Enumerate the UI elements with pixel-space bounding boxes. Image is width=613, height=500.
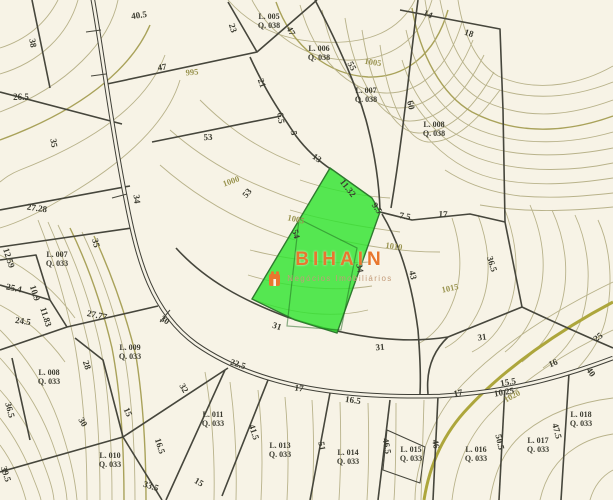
measurement-label: 24.5 bbox=[15, 315, 32, 327]
measurement-label: 35 bbox=[48, 138, 59, 148]
measurement-label: 31 bbox=[375, 342, 385, 353]
plat-map: 40.5382347141826.547215560536.5513353427… bbox=[0, 0, 613, 500]
measurement-label: 31 bbox=[477, 331, 487, 342]
measurement-label: 47 bbox=[284, 25, 297, 38]
measurement-label: 36.5 bbox=[485, 255, 499, 273]
measurement-label: 15 bbox=[193, 475, 206, 488]
measurement-label: 30 bbox=[76, 416, 89, 429]
measurement-label: 14 bbox=[422, 8, 434, 21]
block-number: Q. 033 bbox=[202, 419, 224, 428]
measurement-label: 54 bbox=[290, 228, 302, 239]
watermark-subtitle: Negócios Imobiliários bbox=[265, 274, 415, 283]
lot-number: L. 009 bbox=[119, 343, 141, 352]
contour-elevation-label: 1015 bbox=[441, 281, 460, 294]
lot-label: L. 016Q. 033 bbox=[465, 445, 487, 463]
contour-elevation-label: 1000 bbox=[221, 173, 240, 188]
lot-label: L. 006Q. 038 bbox=[308, 44, 330, 62]
lot-label: L. 009Q. 033 bbox=[119, 343, 141, 361]
block-number: Q. 038 bbox=[308, 53, 330, 62]
lot-label: L. 013Q. 033 bbox=[269, 441, 291, 459]
measurement-label: 47.5 bbox=[550, 422, 564, 440]
measurement-label: 55 bbox=[345, 60, 358, 73]
bihain-logo-icon bbox=[268, 271, 282, 287]
block-number: Q. 033 bbox=[119, 352, 141, 361]
measurement-label: 46 bbox=[430, 439, 441, 450]
measurement-label: 25.4 bbox=[5, 281, 22, 294]
measurement-label: 9.5 bbox=[370, 201, 385, 216]
lot-number: L. 015 bbox=[400, 445, 422, 454]
measurement-label: 27.77 bbox=[86, 308, 108, 322]
measurement-label: 53 bbox=[240, 186, 253, 199]
block-number: Q. 033 bbox=[570, 419, 592, 428]
measurement-label: 10.9 bbox=[28, 284, 42, 302]
measurement-label: 16.5 bbox=[345, 394, 362, 406]
measurement-label: 51 bbox=[316, 441, 327, 452]
lot-label: L. 008Q. 038 bbox=[423, 120, 445, 138]
lot-label: L. 005Q. 038 bbox=[258, 12, 280, 30]
measurement-label: 30 bbox=[159, 313, 172, 326]
lot-number: L. 017 bbox=[527, 436, 549, 445]
measurement-label: 21 bbox=[256, 77, 268, 89]
measurement-label: 17 bbox=[294, 382, 304, 393]
block-number: Q. 038 bbox=[423, 129, 445, 138]
measurement-label: 36.5 bbox=[3, 401, 17, 419]
measurement-label: 11.32 bbox=[338, 177, 358, 199]
lot-number: L. 006 bbox=[308, 44, 330, 53]
measurement-label: 27.28 bbox=[26, 202, 47, 215]
block-number: Q. 033 bbox=[337, 457, 359, 466]
measurement-label: 50.5 bbox=[493, 433, 506, 450]
lot-number: L. 007 bbox=[46, 250, 68, 259]
measurement-label: 26.5 bbox=[13, 92, 29, 102]
block-number: Q. 033 bbox=[99, 460, 121, 469]
block-number: Q. 038 bbox=[355, 95, 377, 104]
measurement-label: 12.59 bbox=[1, 247, 17, 269]
lot-label: L. 007Q. 038 bbox=[355, 86, 377, 104]
measurement-label: 7.5 bbox=[399, 210, 412, 222]
measurement-label: 46.5 bbox=[381, 437, 394, 454]
block-number: Q. 033 bbox=[465, 454, 487, 463]
lot-number: L. 007 bbox=[355, 86, 377, 95]
contour-elevation-label: 995 bbox=[185, 66, 199, 77]
lot-label: L. 018Q. 033 bbox=[570, 410, 592, 428]
block-number: Q. 033 bbox=[269, 450, 291, 459]
block-number: Q. 038 bbox=[258, 21, 280, 30]
measurement-label: 32 bbox=[177, 382, 190, 395]
measurement-label: 38 bbox=[27, 38, 38, 49]
measurement-label: 47 bbox=[157, 61, 167, 72]
measurement-label: 39.5 bbox=[0, 465, 13, 483]
measurement-label: 6.5 bbox=[275, 112, 286, 125]
measurement-label: 53 bbox=[203, 132, 213, 142]
measurement-label: 28 bbox=[81, 359, 93, 371]
lot-number: L. 013 bbox=[269, 441, 291, 450]
measurement-label: 33.5 bbox=[142, 479, 160, 493]
watermark-title: BIHAIN bbox=[265, 249, 415, 271]
measurement-label: 40.5 bbox=[131, 9, 148, 21]
measurement-label: 16.5 bbox=[153, 437, 167, 455]
lot-number: L. 016 bbox=[465, 445, 487, 454]
contour-elevation-label: 1005 bbox=[287, 212, 306, 225]
block-number: Q. 033 bbox=[38, 377, 60, 386]
measurement-label: 41.5 bbox=[247, 423, 261, 441]
block-number: Q. 033 bbox=[46, 259, 68, 268]
lot-number: L. 011 bbox=[202, 410, 224, 419]
lot-label: L. 007Q. 033 bbox=[46, 250, 68, 268]
watermark: BIHAIN Negócios Imobiliários bbox=[265, 249, 415, 283]
lot-label: L. 017Q. 033 bbox=[527, 436, 549, 454]
measurement-label: 15 bbox=[122, 406, 135, 418]
measurement-label: 25 bbox=[591, 330, 604, 343]
measurement-label: 13 bbox=[310, 151, 323, 164]
contour-elevation-label: 1005 bbox=[364, 56, 382, 68]
measurement-label: 31 bbox=[271, 320, 283, 332]
lot-number: L. 008 bbox=[38, 368, 60, 377]
lot-label: L. 011Q. 033 bbox=[202, 410, 224, 428]
measurement-label: 17 bbox=[438, 209, 448, 219]
lot-number: L. 010 bbox=[99, 451, 121, 460]
lot-number: L. 018 bbox=[570, 410, 592, 419]
measurement-label: 23 bbox=[227, 22, 239, 34]
measurement-label: 34 bbox=[131, 194, 142, 204]
lot-label: L. 014Q. 033 bbox=[337, 448, 359, 466]
measurement-label: 40 bbox=[584, 365, 597, 378]
measurement-label: 18 bbox=[463, 27, 475, 39]
measurement-label: 5 bbox=[289, 130, 300, 136]
measurement-label: 22.5 bbox=[229, 357, 247, 371]
lot-number: L. 014 bbox=[337, 448, 359, 457]
measurement-label: 35 bbox=[90, 237, 102, 248]
measurement-label: 11.83 bbox=[38, 306, 54, 328]
lot-label: L. 015Q. 033 bbox=[400, 445, 422, 463]
measurement-label: 16 bbox=[547, 357, 559, 370]
block-number: Q. 033 bbox=[400, 454, 422, 463]
block-number: Q. 033 bbox=[527, 445, 549, 454]
lot-label: L. 010Q. 033 bbox=[99, 451, 121, 469]
measurement-label: 17 bbox=[453, 387, 464, 399]
lot-number: L. 005 bbox=[258, 12, 280, 21]
lot-label: L. 008Q. 033 bbox=[38, 368, 60, 386]
measurement-label: 60 bbox=[405, 100, 417, 111]
lot-number: L. 008 bbox=[423, 120, 445, 129]
